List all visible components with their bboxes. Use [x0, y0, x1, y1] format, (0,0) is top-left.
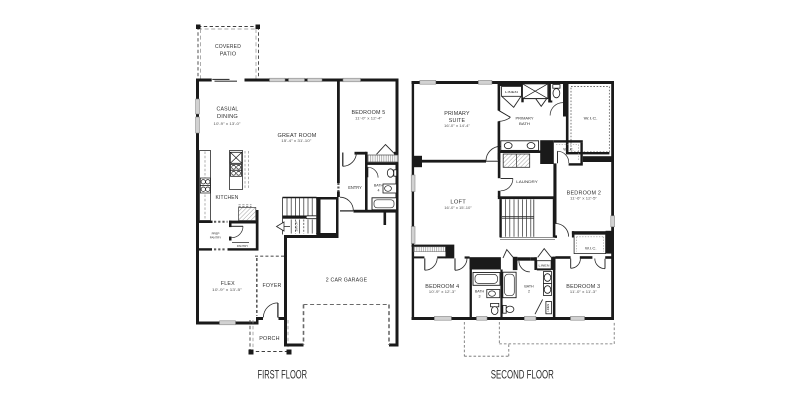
svg-text:2: 2	[528, 290, 530, 294]
svg-text:FOYER: FOYER	[263, 283, 282, 289]
svg-text:10'-9" x 12'-3": 10'-9" x 12'-3"	[429, 290, 457, 294]
svg-text:BATH: BATH	[475, 290, 485, 294]
svg-text:PRIMARY: PRIMARY	[444, 111, 470, 117]
svg-text:CASUAL: CASUAL	[217, 107, 239, 113]
svg-text:SUITE: SUITE	[449, 118, 466, 124]
svg-text:BATH: BATH	[519, 122, 530, 126]
svg-text:LAUNDRY: LAUNDRY	[516, 179, 538, 184]
svg-text:PRIMARY: PRIMARY	[516, 117, 535, 121]
svg-text:PORCH: PORCH	[259, 336, 280, 342]
svg-text:LINEN: LINEN	[539, 263, 550, 267]
svg-text:16R UP: 16R UP	[295, 221, 299, 231]
svg-text:LINEN: LINEN	[505, 90, 518, 94]
svg-text:16'-0" x 15'-10": 16'-0" x 15'-10"	[444, 206, 472, 210]
svg-text:10'-9" x 13'-0": 10'-9" x 13'-0"	[214, 122, 242, 126]
svg-text:PATIO: PATIO	[220, 52, 237, 58]
svg-text:BEDROOM 2: BEDROOM 2	[567, 191, 602, 197]
svg-text:PANTRY: PANTRY	[210, 236, 222, 240]
svg-text:FIRST FLOOR: FIRST FLOOR	[258, 368, 308, 382]
svg-text:FLEX: FLEX	[221, 281, 235, 287]
svg-text:KITCHEN: KITCHEN	[216, 195, 239, 201]
svg-text:4: 4	[378, 189, 380, 193]
svg-text:BEDROOM 3: BEDROOM 3	[566, 284, 600, 290]
svg-text:BEDROOM 4: BEDROOM 4	[425, 284, 459, 290]
svg-text:15'-4" x 31'-10": 15'-4" x 31'-10"	[281, 139, 312, 143]
svg-text:W.I.C.: W.I.C.	[584, 116, 598, 120]
svg-text:ENTRY: ENTRY	[348, 185, 362, 190]
svg-text:LOFT: LOFT	[450, 200, 466, 206]
svg-text:SECOND FLOOR: SECOND FLOOR	[491, 367, 554, 381]
svg-text:11'-6" x 12'-5": 11'-6" x 12'-5"	[570, 197, 598, 201]
svg-text:16'-0" x 14'-4": 16'-0" x 14'-4"	[444, 124, 471, 128]
svg-text:3: 3	[479, 295, 481, 299]
svg-text:LINEN: LINEN	[546, 304, 550, 312]
svg-text:BEDROOM 5: BEDROOM 5	[352, 110, 386, 116]
svg-text:BATH: BATH	[524, 285, 534, 289]
svg-text:BATH: BATH	[374, 184, 384, 188]
svg-text:PANTRY: PANTRY	[237, 244, 249, 248]
svg-text:11'-0" x 11'-3": 11'-0" x 11'-3"	[570, 290, 598, 294]
svg-text:10'-9" x 13'-5": 10'-9" x 13'-5"	[212, 288, 243, 292]
svg-text:COVERED: COVERED	[215, 44, 241, 50]
svg-text:W.I.C.: W.I.C.	[563, 148, 574, 152]
svg-text:W.I.C.: W.I.C.	[585, 246, 597, 250]
svg-text:DINING: DINING	[217, 114, 238, 120]
svg-text:11'-0" x 12'-4": 11'-0" x 12'-4"	[355, 116, 383, 120]
svg-text:2 CAR GARAGE: 2 CAR GARAGE	[326, 278, 368, 284]
